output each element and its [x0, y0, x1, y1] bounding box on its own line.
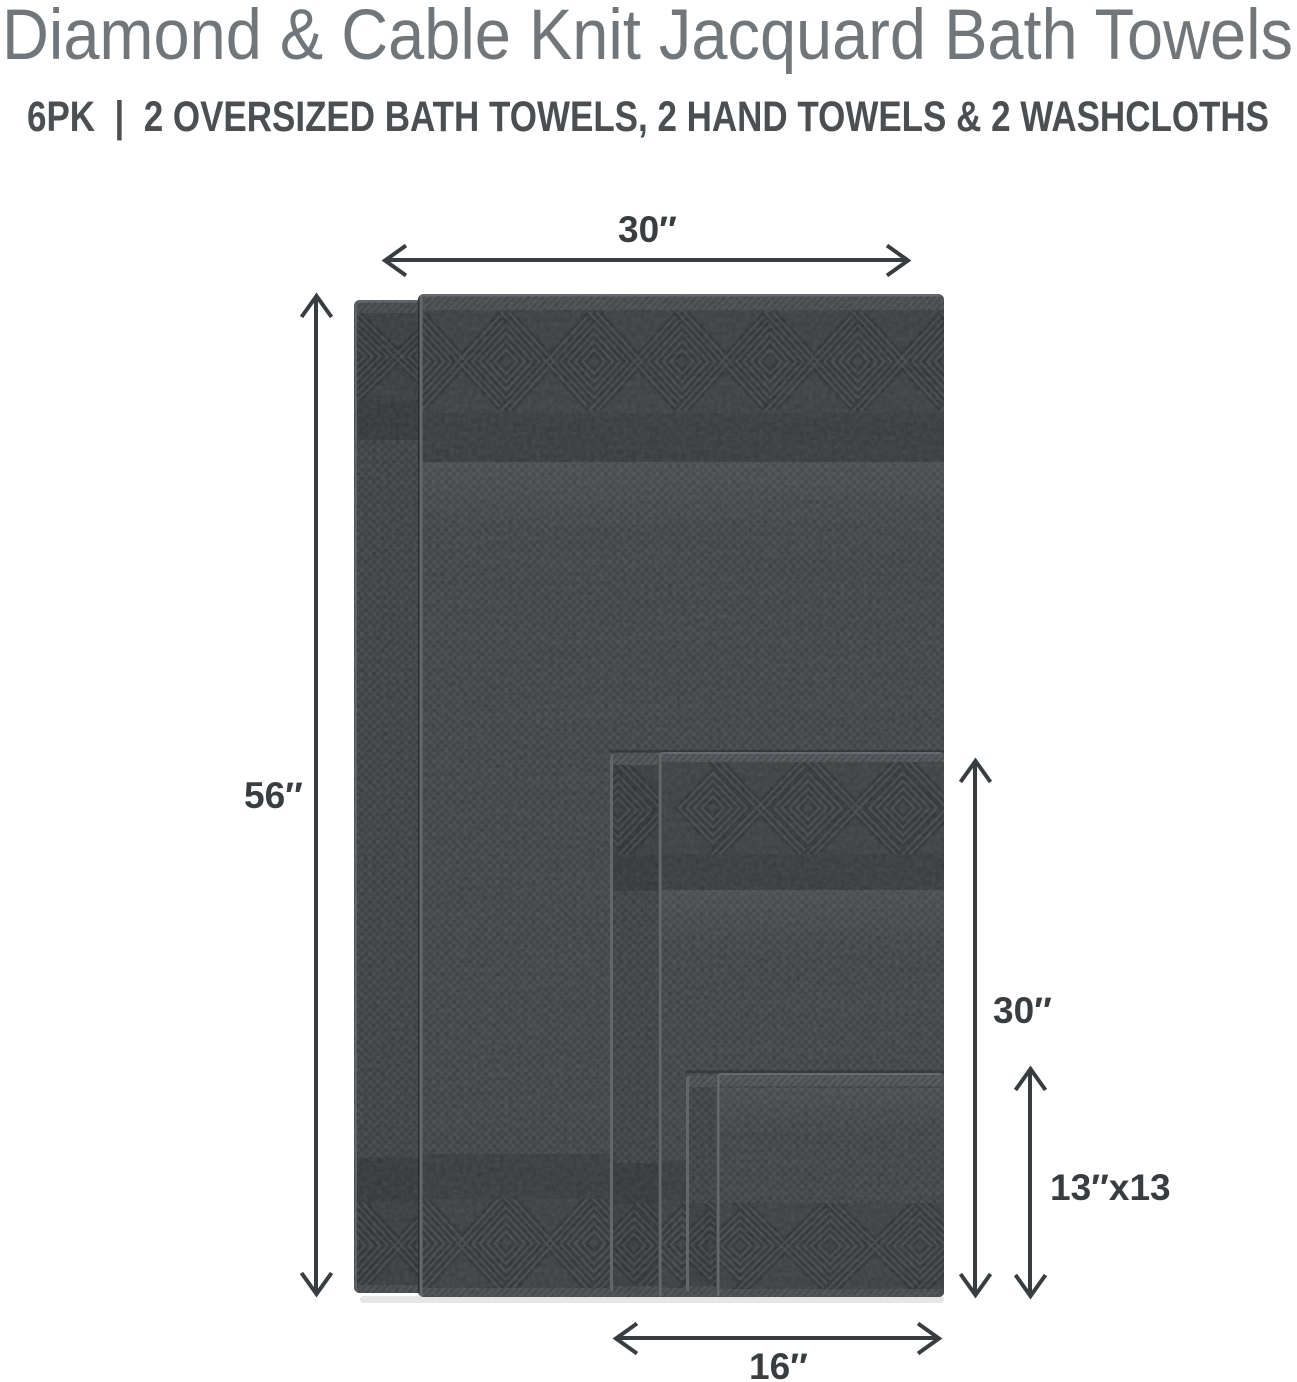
svg-text:16″: 16″ — [749, 1346, 808, 1382]
svg-text:30″: 30″ — [618, 209, 677, 250]
svg-text:56″: 56″ — [244, 775, 303, 816]
svg-text:30″: 30″ — [993, 990, 1052, 1031]
svg-text:13″x13: 13″x13 — [1050, 1167, 1171, 1208]
svg-text:6PK | 2 OVERSIZED BATH TOWEL: 6PK | 2 OVERSIZED BATH TOWELS, 2 HAND TO… — [27, 93, 1269, 141]
svg-text:Diamond & Cable Knit Jacquard: Diamond & Cable Knit Jacquard Bath Towel… — [2, 0, 1293, 75]
